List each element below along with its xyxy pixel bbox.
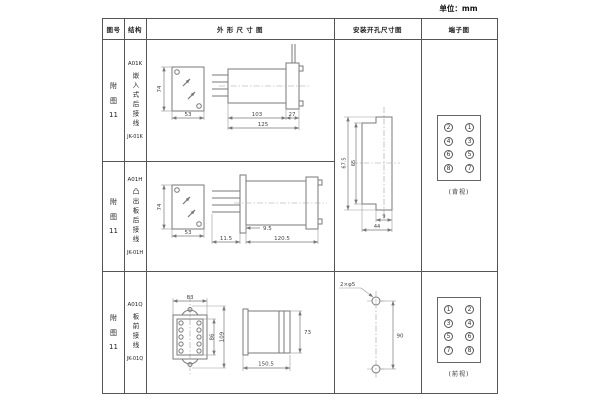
figure-char: 附 — [110, 197, 117, 207]
dim-label: 120.5 — [274, 236, 290, 242]
figure-number-cell: 附 图 11 — [103, 39, 124, 161]
terminal-pin: 4 — [465, 319, 474, 328]
front-view: 83 86 109 — [173, 295, 226, 374]
terminal-box: 2 1 4 3 6 5 8 7 — [437, 115, 481, 181]
dim-label: 73 — [304, 330, 311, 336]
dim-label: 27 — [289, 112, 296, 118]
header-outline: 外 形 尺 寸 图 — [146, 19, 334, 39]
terminal-pin: 2 — [465, 305, 474, 314]
model-code: JK-01H — [127, 250, 143, 256]
terminal-pin: 7 — [444, 346, 453, 355]
terminal-view-label: (背视) — [449, 187, 470, 196]
dim-label: 67.5 — [342, 157, 348, 168]
dim-label: 74 — [157, 85, 163, 92]
terminal-pin: 5 — [465, 150, 474, 159]
terminal-pin: 1 — [465, 123, 474, 132]
mounting-drawing-rows12: 67.5 65 9 44 — [334, 91, 421, 236]
structure-cell: A01K 嵌入式后接线 JK-01K — [124, 39, 146, 161]
terminal-pin: 7 — [465, 164, 474, 173]
structure-desc: 凸出板后接线 — [130, 188, 140, 245]
panel-cutout: 67.5 65 9 44 — [342, 107, 401, 232]
dim-label: 11.5 — [220, 236, 233, 242]
terminal-pin: 8 — [465, 346, 474, 355]
dim-label: 150.5 — [258, 362, 274, 368]
figure-char: 附 — [110, 81, 117, 91]
figure-number: 11 — [109, 227, 118, 235]
header-figure: 图号 — [103, 19, 124, 39]
dim-label: 125 — [258, 122, 269, 128]
drill-holes: 90 2×φ5 — [339, 282, 404, 379]
figure-number: 11 — [109, 111, 118, 119]
terminal-pin: 4 — [444, 137, 453, 146]
terminal-box: 1 2 3 4 5 6 7 8 — [437, 297, 481, 363]
header-mounting: 安装开孔尺寸图 — [334, 19, 421, 39]
outline-drawing-a01q: 83 86 109 — [146, 271, 334, 393]
model-code: JK-01Q — [127, 356, 143, 362]
terminal-pin: 2 — [444, 123, 453, 132]
side-view: 73 150.5 — [243, 309, 311, 371]
terminal-view-label: (前视) — [449, 369, 470, 378]
dim-label: 74 — [157, 203, 163, 210]
front-view: 74 53 — [157, 67, 204, 120]
side-view: 103 27 125 — [212, 44, 309, 130]
structure-desc: 嵌入式后接线 — [130, 72, 140, 129]
terminal-cell-row3: 1 2 3 4 5 6 7 8 (前视) — [421, 271, 497, 393]
structure-cell: A01H 凸出板后接线 JK-01H — [124, 161, 146, 271]
outline-drawing-a01h: 74 53 9.5 — [146, 161, 334, 271]
model-label: A01H — [128, 177, 143, 183]
dim-label: 103 — [252, 112, 263, 118]
front-view: 74 53 — [157, 185, 204, 238]
outline-cell-a01q: 83 86 109 — [146, 271, 334, 393]
figure-char: 图 — [110, 96, 117, 106]
structure-desc: 板前接线 — [130, 313, 140, 351]
header-structure: 结构 — [124, 19, 146, 39]
figure-number-cell: 附 图 11 — [103, 271, 124, 393]
terminal-cell-rows12: 2 1 4 3 6 5 8 7 (背视) — [421, 39, 497, 271]
outline-cell-a01k: 74 53 10 — [146, 39, 334, 161]
unit-label: 单位：mm — [420, 3, 497, 14]
figure-char: 图 — [110, 328, 117, 338]
figure-char: 附 — [110, 313, 117, 323]
terminal-pin: 3 — [465, 137, 474, 146]
figure-number-cell: 附 图 11 — [103, 161, 124, 271]
model-label: A01Q — [127, 302, 142, 308]
dim-label: 44 — [374, 224, 380, 230]
hole-callout-label: 2×φ5 — [340, 282, 356, 288]
dim-label: 109 — [220, 331, 226, 342]
mounting-cell-row3: 90 2×φ5 — [334, 271, 421, 393]
terminal-pin: 6 — [465, 332, 474, 341]
terminal-pin: 8 — [444, 164, 453, 173]
terminal-pin: 3 — [444, 319, 453, 328]
dim-label: 9.5 — [263, 226, 272, 232]
dim-label: 90 — [397, 334, 404, 340]
side-view: 9.5 11.5 120.5 — [212, 175, 327, 244]
dimension-table: 图号 结构 外 形 尺 寸 图 安装开孔尺寸图 端子图 附 图 11 A01K … — [102, 18, 498, 394]
dim-label: 53 — [185, 230, 192, 236]
dim-label: 65 — [351, 160, 357, 166]
outline-cell-a01h: 74 53 9.5 — [146, 161, 334, 271]
dim-label: 9 — [382, 214, 385, 220]
terminal-pin: 5 — [444, 332, 453, 341]
outline-drawing-a01k: 74 53 10 — [146, 39, 334, 161]
figure-char: 图 — [110, 212, 117, 222]
model-code: JK-01K — [127, 134, 143, 140]
terminal-pin: 1 — [444, 305, 453, 314]
model-label: A01K — [128, 61, 142, 67]
structure-cell: A01Q 板前接线 JK-01Q — [124, 271, 146, 393]
dim-label: 53 — [185, 112, 192, 118]
header-terminal: 端子图 — [421, 19, 497, 39]
dim-label: 86 — [210, 333, 216, 340]
mounting-cell-rows12: 67.5 65 9 44 — [334, 39, 421, 271]
terminal-pin: 6 — [444, 150, 453, 159]
figure-number: 11 — [109, 343, 118, 351]
mounting-drawing-row3: 90 2×φ5 — [334, 271, 421, 393]
